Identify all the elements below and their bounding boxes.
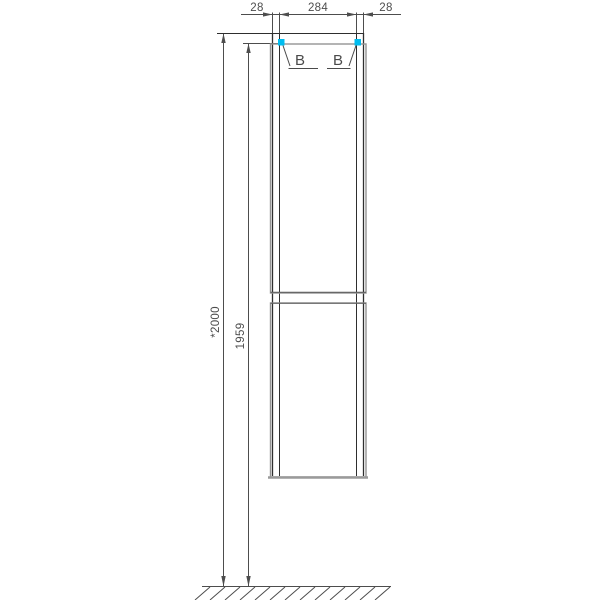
cabinet-elevation-drawing: 28 284 28 *2000 1959 bbox=[0, 0, 600, 600]
callout-label-right: B bbox=[333, 52, 343, 69]
technical-drawing-canvas: 28 284 28 *2000 1959 bbox=[0, 0, 600, 600]
cabinet-doors bbox=[268, 44, 368, 478]
arrow-west-icon bbox=[280, 12, 290, 16]
top-dimension-group bbox=[241, 12, 401, 33]
arrow-west-icon bbox=[364, 12, 374, 16]
detail-marker-right bbox=[355, 39, 362, 46]
arrow-north-icon bbox=[221, 34, 225, 44]
dim-label-right-28: 28 bbox=[379, 2, 392, 14]
upper-door bbox=[271, 44, 367, 293]
dim-label-284: 284 bbox=[308, 2, 328, 14]
arrow-east-icon bbox=[263, 12, 273, 16]
dim-label-2000: *2000 bbox=[210, 306, 222, 338]
floor-hatch-lines bbox=[195, 587, 390, 600]
dim-label-left-28: 28 bbox=[250, 2, 263, 14]
leader-line-right bbox=[349, 46, 356, 67]
floor-ground-symbol bbox=[195, 587, 391, 600]
callout-label-left: B bbox=[295, 52, 305, 69]
arrow-north-icon bbox=[246, 44, 250, 54]
leader-line-left bbox=[283, 46, 290, 67]
lower-door bbox=[271, 303, 367, 477]
arrow-south-icon bbox=[221, 576, 225, 587]
arrow-south-icon bbox=[246, 576, 250, 587]
arrow-east-icon bbox=[347, 12, 357, 16]
cabinet-carcass bbox=[217, 33, 364, 476]
dim-label-1959: 1959 bbox=[235, 323, 247, 350]
detail-marker-left bbox=[278, 39, 285, 46]
